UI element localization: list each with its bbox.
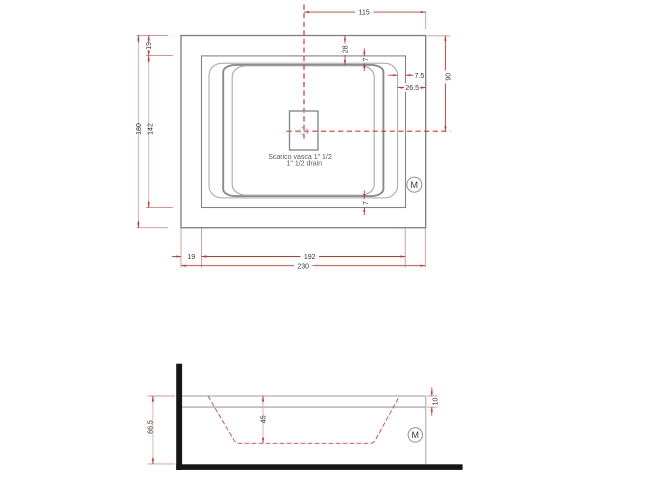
svg-text:230: 230 xyxy=(297,263,309,270)
svg-text:7: 7 xyxy=(363,58,370,62)
svg-text:7: 7 xyxy=(363,201,370,205)
svg-text:M: M xyxy=(411,180,419,190)
svg-text:7.5: 7.5 xyxy=(415,73,425,80)
svg-text:45: 45 xyxy=(260,415,267,423)
svg-text:26.5: 26.5 xyxy=(405,85,419,92)
svg-text:19: 19 xyxy=(146,42,153,50)
svg-text:1" 1/2 drain: 1" 1/2 drain xyxy=(287,161,323,168)
svg-text:90: 90 xyxy=(445,73,452,81)
svg-text:19: 19 xyxy=(187,254,195,261)
svg-text:192: 192 xyxy=(304,254,316,261)
svg-text:180: 180 xyxy=(136,123,143,135)
svg-text:115: 115 xyxy=(359,10,370,17)
svg-text:142: 142 xyxy=(148,123,155,135)
svg-text:10: 10 xyxy=(432,398,439,406)
svg-text:66.5: 66.5 xyxy=(147,420,154,434)
svg-text:28: 28 xyxy=(342,45,349,53)
svg-text:M: M xyxy=(412,430,420,440)
